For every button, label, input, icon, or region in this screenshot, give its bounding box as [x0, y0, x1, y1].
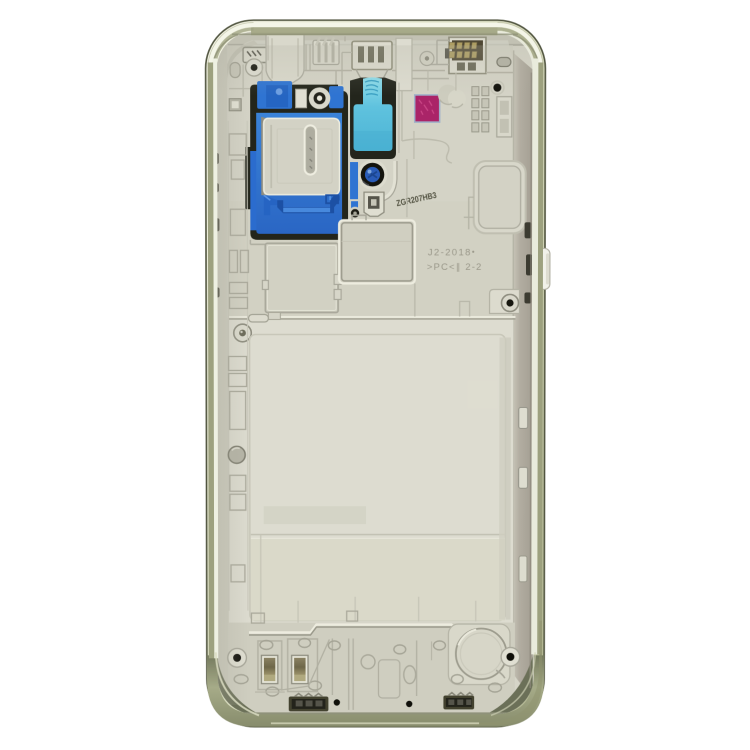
svg-text:J2-2018•: J2-2018•: [428, 247, 476, 258]
svg-text:>PC<∥ 2-2: >PC<∥ 2-2: [427, 262, 483, 273]
